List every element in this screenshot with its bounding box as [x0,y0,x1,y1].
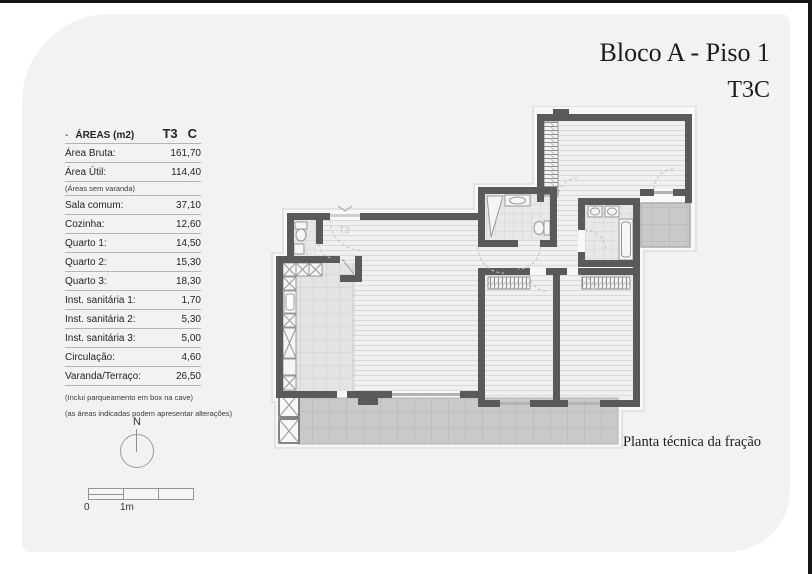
row-value: 18,30 [176,276,201,287]
row-value: 26,50 [176,371,201,382]
row-value: 4,60 [182,352,201,363]
row-label: Área Útil: [65,167,106,178]
row-label: Inst. sanitária 1: [65,295,136,306]
areas-table: - ÁREAS (m2) T3 C Área Bruta: 161,70 Áre… [65,122,201,418]
table-row: Quarto 1: 14,50 [65,234,201,253]
row-label: Quarto 1: [65,238,107,249]
room-quarto-3 [544,121,685,198]
floorplan-drawing: T3 [262,106,726,462]
row-value: 114,40 [171,167,201,178]
scale-zero-label: 0 [84,502,90,513]
row-label: Inst. sanitária 3: [65,333,136,344]
title-typology: T3C [600,76,770,104]
row-value: 5,30 [182,314,201,325]
row-value: 14,50 [176,238,201,249]
table-footnote-1: (Inclui parqueamento em box na cave) [65,393,201,402]
screenshot-top-edge [0,0,812,3]
header-col: C [188,126,197,141]
table-row: Inst. sanitária 1: 1,70 [65,291,201,310]
screenshot-right-edge [808,0,812,574]
compass-icon [120,434,154,468]
scale-segment [158,489,193,499]
table-row: Inst. sanitária 2: 5,30 [65,310,201,329]
plan-caption: Planta técnica da fração [618,434,766,451]
row-value: 5,00 [182,333,201,344]
row-label: Varanda/Terraço: [65,371,141,382]
document-page: Bloco A - Piso 1 T3C - ÁREAS (m2) T3 C Á… [22,14,790,552]
row-value: 37,10 [176,200,201,211]
row-value: 12,60 [176,219,201,230]
table-row: Circulação: 4,60 [65,348,201,367]
row-label: Cozinha: [65,219,104,230]
page-title: Bloco A - Piso 1 T3C [600,38,770,104]
header-type: T3 [162,126,177,141]
row-label: Inst. sanitária 2: [65,314,136,325]
table-row: Área Útil: 114,40 [65,163,201,182]
header-dash: - [65,130,68,141]
room-quarto-2 [560,275,633,400]
title-block-piso: Bloco A - Piso 1 [600,38,770,68]
terrace-top-right [641,203,690,247]
entrance-label: T3 [339,225,350,235]
row-label: Área Bruta: [65,148,116,159]
table-row: Cozinha: 12,60 [65,215,201,234]
scale-one-label: 1m [120,502,134,513]
table-row: Inst. sanitária 3: 5,00 [65,329,201,348]
room-quarto-1 [485,275,553,400]
table-row: Sala comum: 37,10 [65,196,201,215]
scale-segment [89,489,123,499]
row-value: 161,70 [170,148,201,159]
row-label: Quarto 3: [65,276,107,287]
row-value: 1,70 [182,295,201,306]
table-row: Área Bruta: 161,70 [65,144,201,163]
table-note: (Áreas sem varanda) [65,182,201,196]
scale-segment [123,489,158,499]
row-label: Sala comum: [65,200,123,211]
scale-bar [88,488,194,500]
row-label: Circulação: [65,352,115,363]
table-row: Quarto 3: 18,30 [65,272,201,291]
header-label: ÁREAS (m2) [75,130,162,141]
row-label: Quarto 2: [65,257,107,268]
north-label: N [127,416,147,428]
table-row: Quarto 2: 15,30 [65,253,201,272]
areas-table-header: - ÁREAS (m2) T3 C [65,122,201,144]
row-value: 15,30 [176,257,201,268]
table-row: Varanda/Terraço: 26,50 [65,367,201,386]
